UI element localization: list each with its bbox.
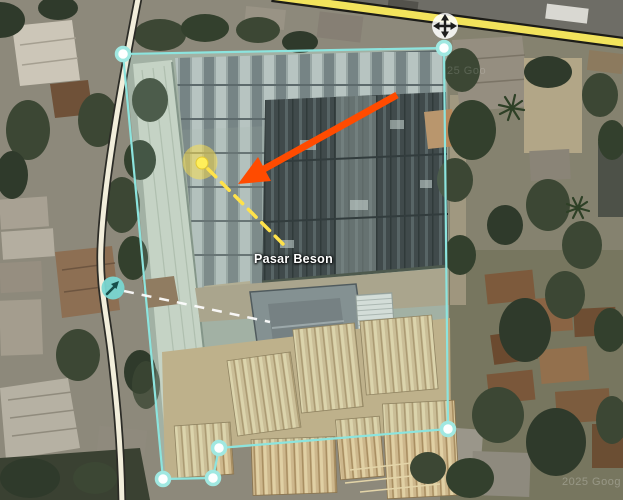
polygon-vertex-handle[interactable] [157,473,170,486]
place-label: Pasar Beson [254,252,333,266]
map-canvas[interactable]: Pasar Beson 25 Goo 2025 Goog [0,0,623,500]
polygon-vertex-handle[interactable] [438,42,451,55]
move-handle[interactable] [432,13,458,39]
polygon-vertex-handle[interactable] [207,472,220,485]
highlight-dot [196,157,208,169]
watermark-upper: 25 Goo [447,65,486,77]
polygon-vertex-handle[interactable] [442,423,455,436]
watermark-lower: 2025 Goog [562,476,621,488]
polygon-vertex-handle[interactable] [213,442,226,455]
map-overlays [0,0,623,500]
draw-cursor-marker[interactable] [102,277,125,300]
polygon-vertex-handle[interactable] [117,48,130,61]
